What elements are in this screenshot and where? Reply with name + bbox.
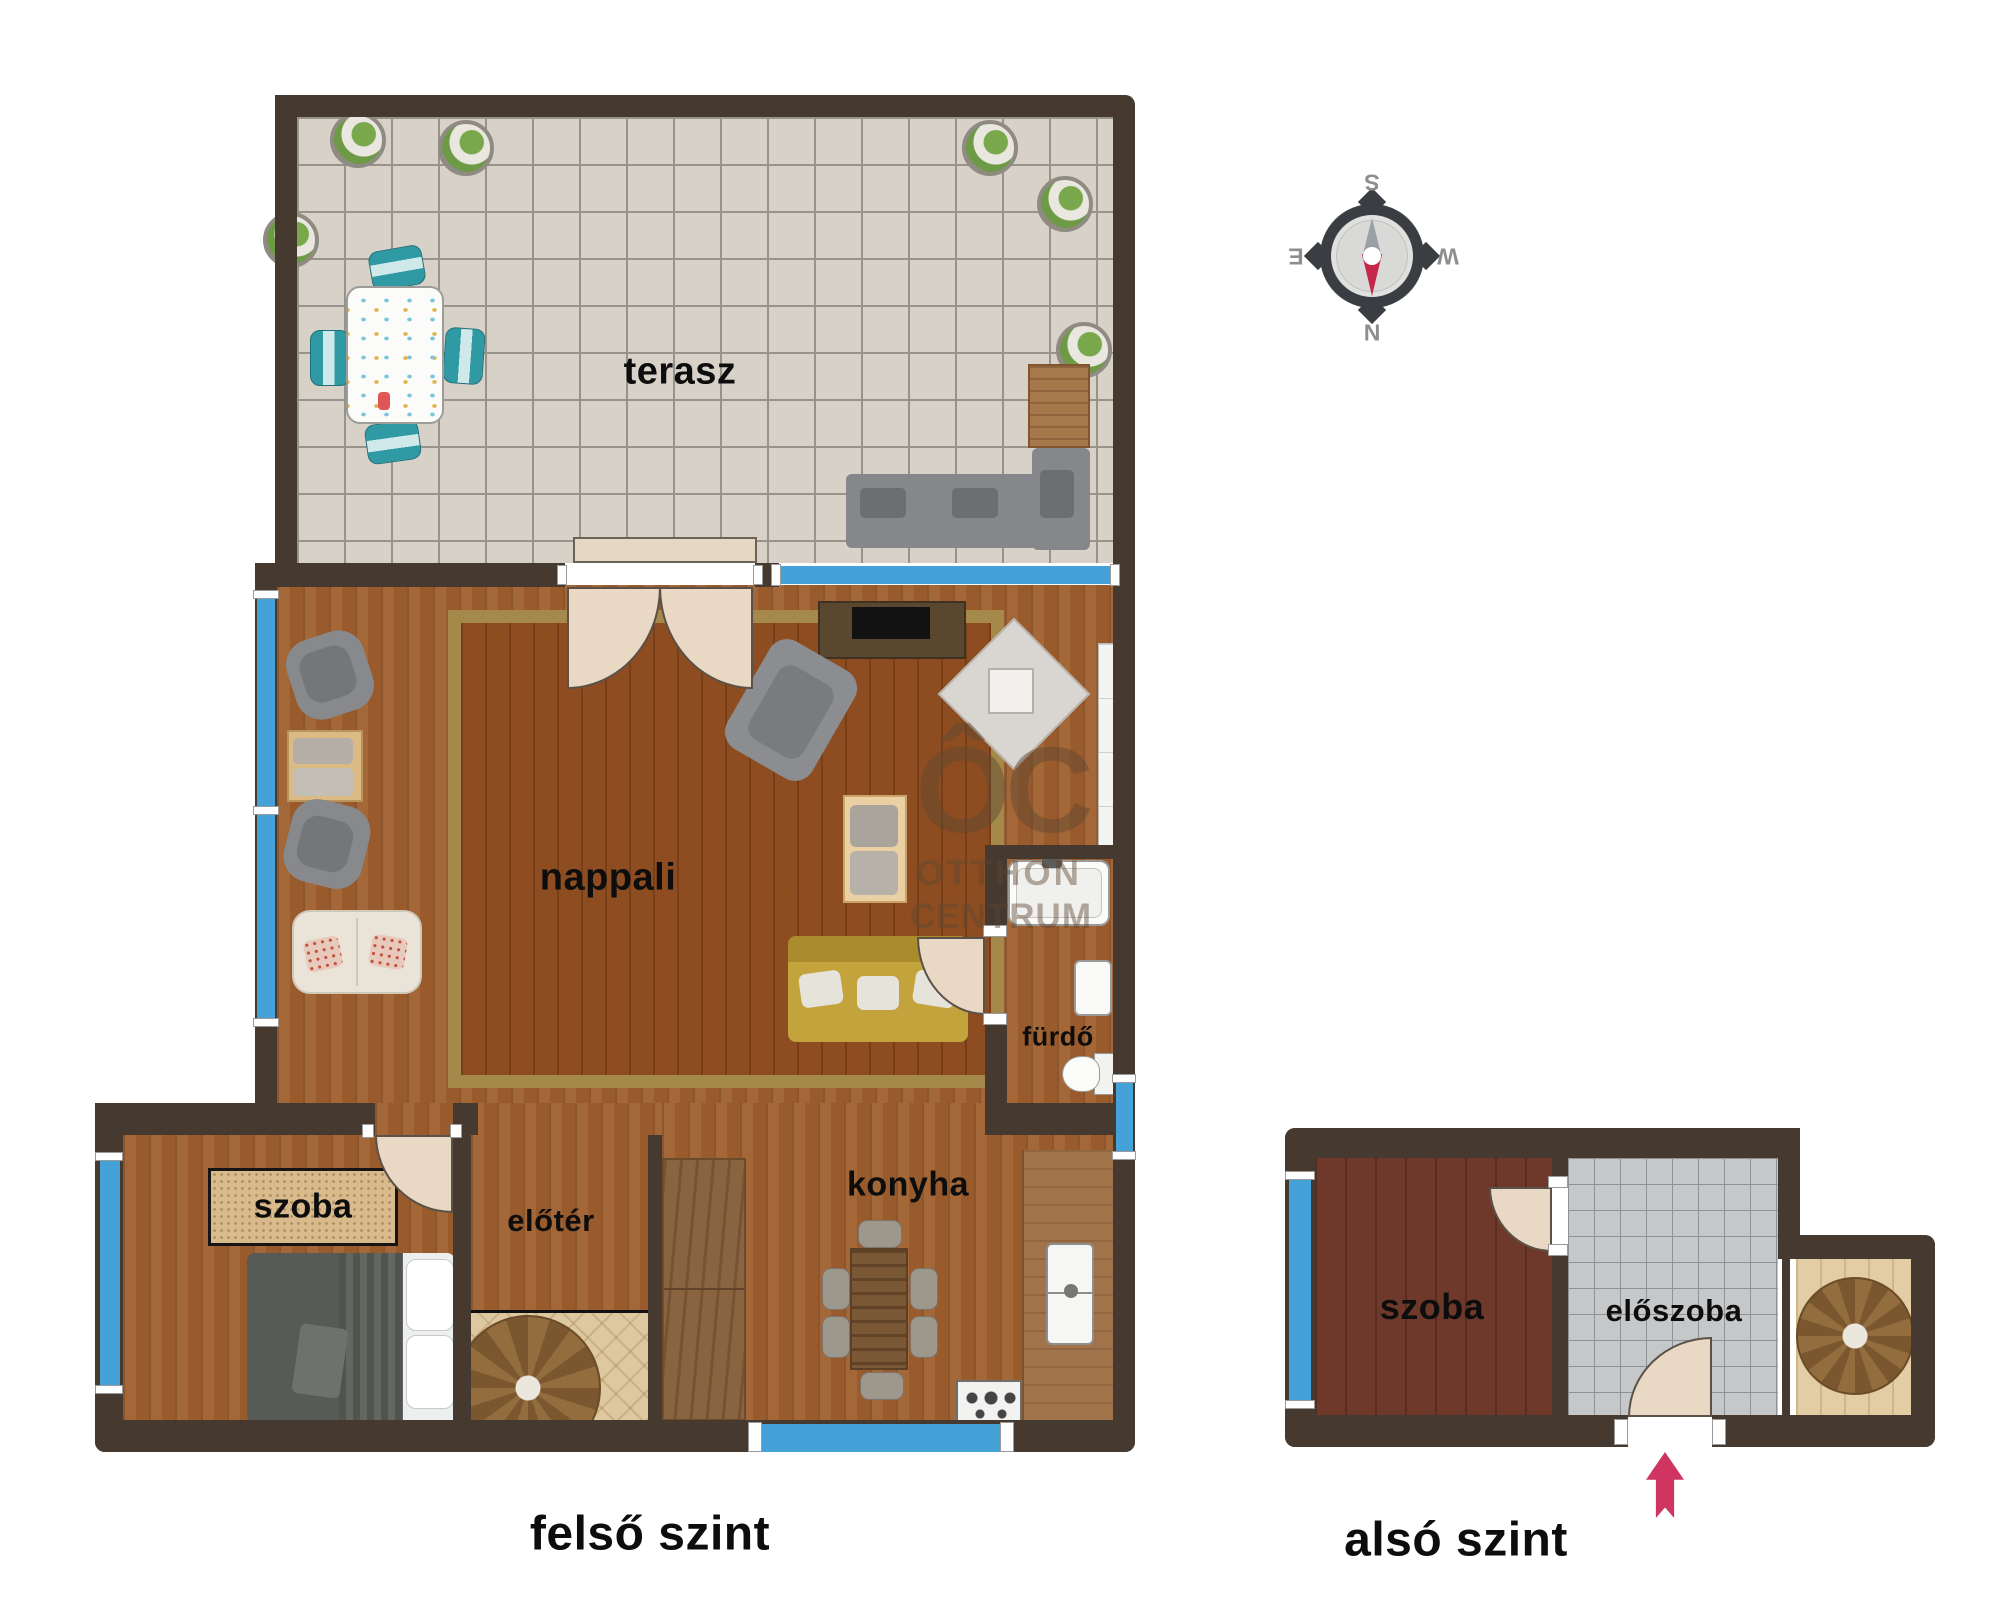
pillow-patterned (367, 933, 408, 971)
bed-blanket (339, 1253, 403, 1423)
faucet-icon (1064, 1284, 1078, 1298)
room-label-living: nappali (540, 857, 677, 900)
plant-pot-icon (438, 120, 494, 176)
window-cap (1285, 1400, 1315, 1409)
lower-wall-top (1285, 1128, 1800, 1158)
wall-lower-room-hall (1552, 1252, 1568, 1415)
window-cap (253, 1018, 279, 1027)
floorplan-canvas: terasz nappali (0, 0, 2000, 1620)
door-cap (362, 1124, 374, 1138)
passage-floor (471, 1103, 662, 1137)
window-cap (95, 1385, 123, 1394)
lower-plan-title: alsó szint (1344, 1513, 1568, 1568)
plant-pot-icon (962, 120, 1018, 176)
spiral-staircase (1796, 1277, 1911, 1395)
terrace-wall-top (275, 95, 1135, 117)
loveseat-seam (356, 918, 358, 986)
room-label-terrace: terasz (624, 351, 737, 394)
plant-pot-icon (1037, 176, 1093, 232)
wall-bedroom-hall (453, 1135, 471, 1420)
kitchen-chair (822, 1316, 850, 1358)
sofa-cushion (860, 488, 906, 518)
lower-stair-floor (1796, 1259, 1911, 1415)
compass-label-south: S (1364, 169, 1379, 196)
kitchen-chair (822, 1268, 850, 1310)
kitchen-chair (860, 1372, 904, 1400)
room-label-lower-room: szoba (1380, 1286, 1485, 1328)
sofa-cushion (1040, 470, 1074, 518)
spiral-staircase (471, 1315, 601, 1420)
plant-pot-icon (330, 112, 386, 168)
bed-pillow (406, 1335, 454, 1409)
watermark-line1: OTTHON (916, 854, 1082, 894)
lower-wall-bottom (1285, 1415, 1628, 1447)
nook-cushion (850, 851, 898, 895)
nook-cushion (850, 805, 898, 847)
bathroom-wall-bottom (985, 1103, 1135, 1135)
watermark-line2: CENTRUM (910, 897, 1092, 937)
terrace-wall-left (275, 95, 297, 563)
terrace-chair (310, 330, 350, 386)
bedroom-wall-top (95, 1103, 375, 1135)
entry-door-kitchen (762, 1424, 1000, 1452)
hall-parquet (471, 1310, 648, 1420)
door-cap (450, 1124, 462, 1138)
compass-label-north: N (1364, 319, 1381, 346)
entry-arrow-icon (1646, 1452, 1684, 1518)
terrace-door-sill (573, 537, 757, 563)
bathroom-sink (1074, 960, 1112, 1016)
terrace-chair (363, 418, 422, 465)
toilet-bowl (1062, 1056, 1100, 1092)
room-label-hall: előtér (507, 1203, 594, 1239)
lower-floor-divider (1782, 1259, 1790, 1415)
stove (956, 1380, 1022, 1422)
wardrobe-divider (664, 1288, 744, 1290)
window-left (257, 598, 275, 808)
window-cap (771, 564, 781, 586)
kitchen-chair (858, 1220, 902, 1248)
lower-extension-wall-right (1911, 1235, 1935, 1447)
bench-cushion (293, 738, 353, 764)
door-cap (1614, 1419, 1628, 1445)
compass-hub-icon (1363, 247, 1381, 265)
window-cap (1285, 1171, 1315, 1180)
kitchen-table (850, 1248, 908, 1370)
living-wall-top (255, 563, 565, 587)
room-label-bathroom: fürdő (1022, 1022, 1093, 1053)
bed-pillow (406, 1259, 454, 1331)
terrace-cabinet (1028, 364, 1090, 448)
bathroom-wall-left (985, 1015, 1007, 1103)
sofa-pillow (798, 969, 844, 1009)
window-cap (95, 1152, 123, 1161)
window-cap (1112, 1151, 1136, 1160)
window-right (1116, 1082, 1133, 1152)
terrace-dining-table (346, 286, 444, 424)
table-item (378, 392, 390, 410)
door-cap (1712, 1419, 1726, 1445)
room-label-lower-hall: előszoba (1606, 1293, 1743, 1329)
folded-towel (291, 1323, 348, 1399)
door-cap (1548, 1244, 1568, 1256)
door-cap (748, 1422, 762, 1452)
window-left (257, 812, 275, 1020)
window-cap (1112, 1074, 1136, 1083)
room-label-bedroom: szoba (254, 1188, 353, 1227)
tv-screen (852, 607, 930, 639)
building-wall-right (1113, 95, 1135, 1452)
bench-cushion (293, 768, 353, 796)
door-cap (1548, 1176, 1568, 1188)
lower-wall-bottom (1712, 1415, 1935, 1447)
window-bedroom (100, 1160, 120, 1386)
side-table (988, 668, 1034, 714)
sofa-cushion (952, 488, 998, 518)
kitchen-chair (910, 1316, 938, 1358)
terrace-chair (442, 327, 486, 386)
door-cap (753, 565, 763, 585)
door-cap (983, 1013, 1007, 1025)
upper-plan-title: felső szint (530, 1507, 770, 1562)
window-cap (253, 590, 279, 599)
room-label-kitchen: konyha (847, 1166, 969, 1205)
kitchen-chair (910, 1268, 938, 1310)
watermark-logo: ÔC (916, 720, 1089, 860)
compass-label-west: W (1437, 243, 1459, 270)
window-top (779, 566, 1114, 584)
door-cap (557, 565, 567, 585)
window-cap (253, 806, 279, 815)
compass-rose: S N E W (1306, 190, 1438, 326)
window-cap (1110, 564, 1120, 586)
passage-floor (375, 1103, 453, 1137)
compass-label-east: E (1288, 243, 1303, 270)
wall-hall-kitchen (648, 1135, 662, 1420)
door-cap (1000, 1422, 1014, 1452)
sofa-pillow (857, 976, 899, 1010)
window-lower-left (1289, 1179, 1311, 1401)
